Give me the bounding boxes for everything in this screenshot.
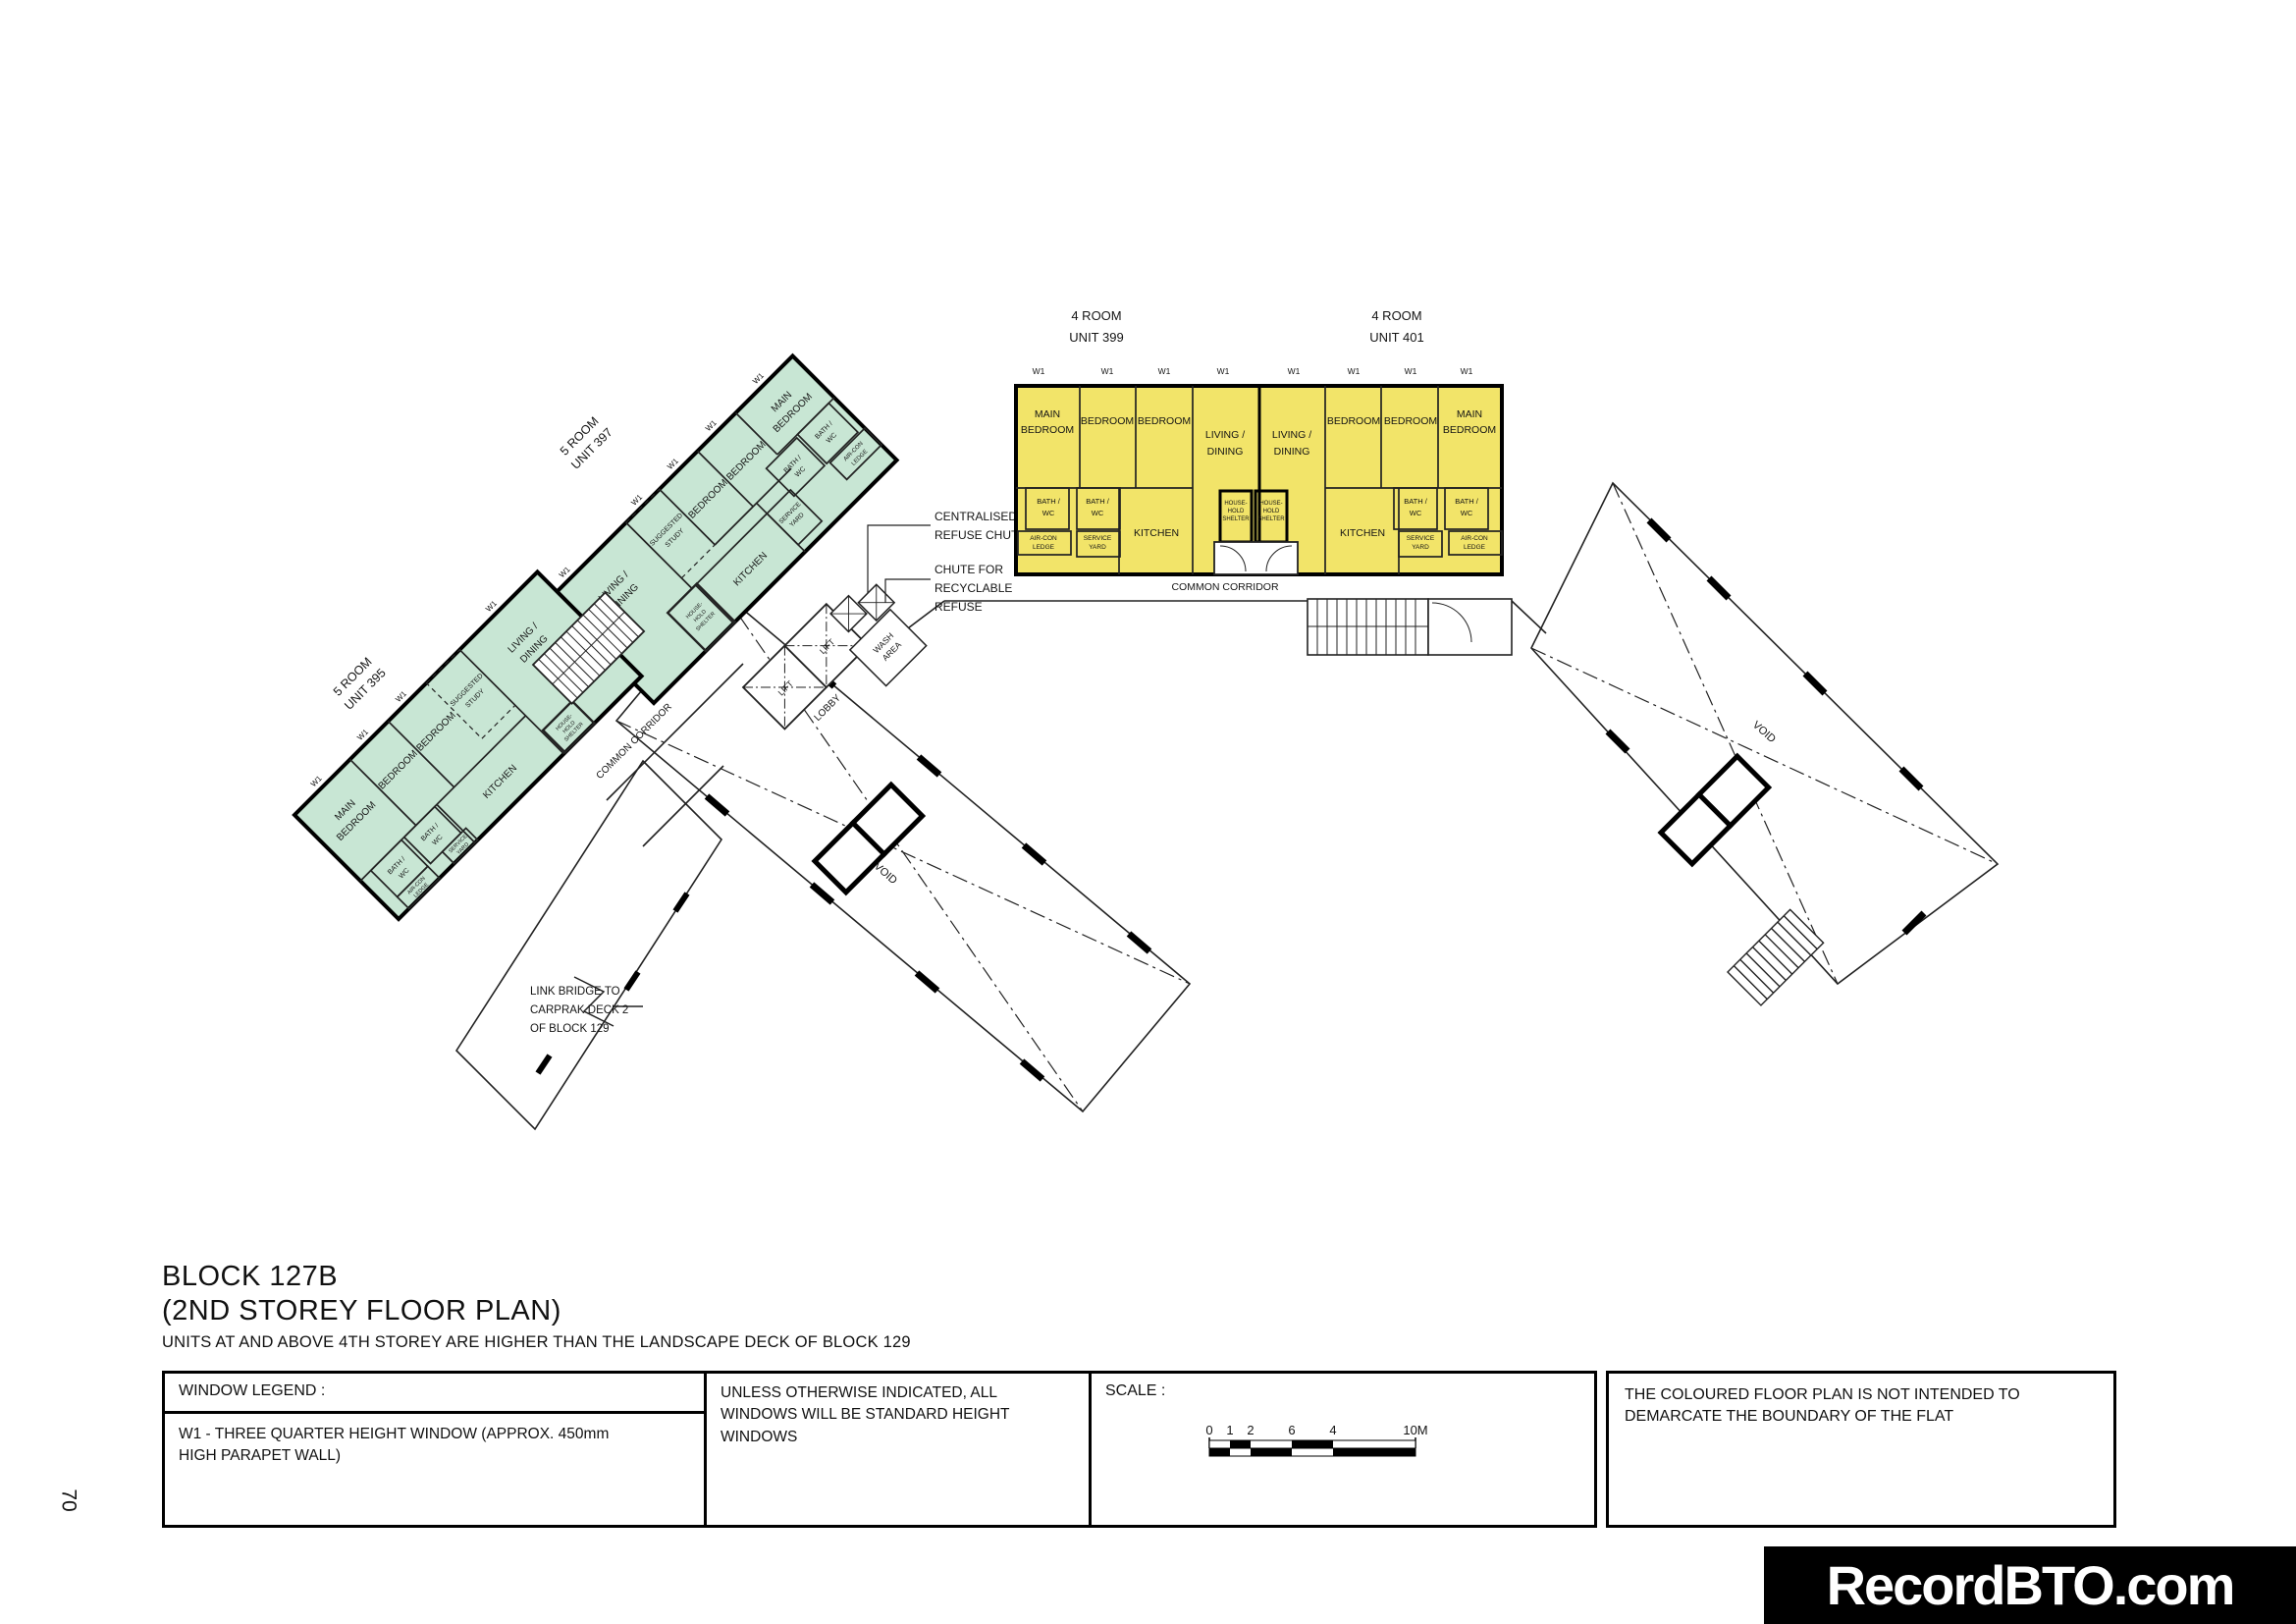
u401-service-label1: SERVICE [1407, 535, 1435, 542]
right-wing-stairs [1728, 909, 1824, 1005]
u401-bath1-label1: BATH / [1404, 497, 1428, 506]
u399-hh-label2: HOLD [1228, 509, 1245, 514]
scale-tick-1: 1 [1226, 1423, 1233, 1437]
lobby-cluster: LIFT LIFT WASH AREA [743, 569, 932, 758]
four-room-block: MAIN BEDROOM BEDROOM BEDROOM LIVING / DI… [1016, 366, 1502, 574]
scale-bar-segments [1209, 1437, 1415, 1456]
block-title: BLOCK 127B [162, 1260, 911, 1294]
void-label-center: VOID [872, 860, 899, 887]
yellow-w1-b: W1 [1101, 366, 1114, 376]
refuse-chute-line2: REFUSE CHUTE [934, 528, 1026, 542]
scale-tick-6: 4 [1329, 1423, 1336, 1437]
u399-kitchen-label: KITCHEN [1134, 527, 1179, 539]
yellow-w1-e: W1 [1288, 366, 1301, 376]
yellow-w1-f: W1 [1348, 366, 1361, 376]
common-corridor-label-horizontal: COMMON CORRIDOR [1171, 581, 1278, 593]
u401-hh-label3: SHELTER [1257, 516, 1285, 522]
windows-note-cell: UNLESS OTHERWISE INDICATED, ALL WINDOWS … [707, 1374, 1092, 1525]
void-label-right: VOID [1750, 719, 1778, 745]
scale-tick-0: 0 [1205, 1423, 1212, 1437]
u401-hh-label1: HOUSE- [1259, 501, 1282, 507]
u399-living-label2: DINING [1207, 446, 1244, 458]
u401-bath2-label1: BATH / [1455, 497, 1479, 506]
coloured-plan-disclaimer-text: THE COLOURED FLOOR PLAN IS NOT INTENDED … [1625, 1384, 2091, 1429]
title-block: BLOCK 127B (2ND STOREY FLOOR PLAN) UNITS… [162, 1260, 911, 1352]
scale-bar: 0 1 2 6 4 10M [1200, 1421, 1474, 1480]
window-legend-title: WINDOW LEGEND : [165, 1374, 704, 1414]
u401-living-label2: DINING [1274, 446, 1310, 458]
u399-hh-label1: HOUSE- [1224, 501, 1247, 507]
windows-note-text: UNLESS OTHERWISE INDICATED, ALL WINDOWS … [721, 1382, 1049, 1448]
u401-aircon-label2: LEDGE [1464, 544, 1486, 551]
u401-main-label2: BEDROOM [1443, 424, 1496, 436]
window-legend-cell: WINDOW LEGEND : W1 - THREE QUARTER HEIGH… [165, 1374, 707, 1525]
u399-bath1-label2: WC [1042, 509, 1055, 517]
u401-aircon-label1: AIR-CON [1461, 535, 1488, 542]
u399-service-label1: SERVICE [1084, 535, 1112, 542]
window-legend-w1-note: W1 - THREE QUARTER HEIGHT WINDOW (APPROX… [165, 1414, 624, 1476]
scale-tick-4: 6 [1288, 1423, 1295, 1437]
link-bridge-line3: OF BLOCK 129 [530, 1023, 610, 1035]
u399-aircon-label1: AIR-CON [1030, 535, 1057, 542]
block-stairs [1308, 599, 1512, 655]
u399-service-label2: YARD [1089, 544, 1106, 551]
u401-bath1-label2: WC [1410, 509, 1422, 517]
u401-living-label1: LIVING / [1272, 429, 1311, 441]
recyclable-line1: CHUTE FOR [934, 563, 1003, 576]
right-lift-core [1661, 756, 1769, 864]
u399-bath2-label2: WC [1092, 509, 1104, 517]
refuse-chute-line1: CENTRALISED [934, 510, 1017, 523]
u399-hh-label3: SHELTER [1222, 516, 1250, 522]
u401-kitchen-label: KITCHEN [1340, 527, 1385, 539]
u401-bedroom2-label: BEDROOM [1384, 415, 1437, 427]
page-number: 70 [57, 1489, 80, 1511]
link-bridge-line1: LINK BRIDGE TO [530, 986, 620, 998]
unit-401-title-line2: UNIT 401 [1369, 330, 1423, 345]
unit-399-title-line1: 4 ROOM [1071, 308, 1121, 323]
scale-tick-10m: 10M [1403, 1423, 1427, 1437]
yellow-w1-g: W1 [1405, 366, 1417, 376]
u399-main-label2: BEDROOM [1021, 424, 1074, 436]
recordbto-watermark: RecordBTO.com [1764, 1546, 2296, 1624]
u401-hh-label2: HOLD [1263, 509, 1280, 514]
yellow-w1-a: W1 [1033, 366, 1045, 376]
u399-aircon-label2: LEDGE [1033, 544, 1055, 551]
u401-bedroom1-label: BEDROOM [1327, 415, 1380, 427]
recyclable-line3: REFUSE [934, 600, 983, 614]
recyclable-line2: RECYCLABLE [934, 581, 1012, 595]
scale-title: SCALE : [1105, 1382, 1583, 1400]
u401-main-label1: MAIN [1457, 408, 1482, 420]
coloured-plan-disclaimer-box: THE COLOURED FLOOR PLAN IS NOT INTENDED … [1606, 1371, 2116, 1528]
u401-bath2-label2: WC [1461, 509, 1473, 517]
center-lift-core [815, 785, 923, 893]
scale-tick-2: 2 [1247, 1423, 1254, 1437]
u399-bedroom1-label: BEDROOM [1081, 415, 1134, 427]
link-bridge-annotation: LINK BRIDGE TO CARPRAK DECK 2 OF BLOCK 1… [530, 986, 628, 1035]
legend-table: WINDOW LEGEND : W1 - THREE QUARTER HEIGH… [162, 1371, 1597, 1528]
u399-bedroom2-label: BEDROOM [1138, 415, 1191, 427]
u399-living-label1: LIVING / [1205, 429, 1245, 441]
yellow-w1-d: W1 [1217, 366, 1230, 376]
storey-title: (2ND STOREY FLOOR PLAN) [162, 1294, 911, 1328]
u401-service-label2: YARD [1412, 544, 1429, 551]
scale-cell: SCALE : 0 1 2 6 4 10M [1092, 1374, 1597, 1525]
chute-annotations: CENTRALISED REFUSE CHUTE CHUTE FOR RECYC… [934, 510, 1026, 614]
floor-plan-page: VOID LINK BRIDGE TO CARPRAK DECK 2 OF BL… [0, 0, 2296, 1624]
center-void-wing [616, 593, 1190, 1111]
yellow-w1-c: W1 [1158, 366, 1171, 376]
u399-main-label1: MAIN [1035, 408, 1060, 420]
storey-note: UNITS AT AND ABOVE 4TH STOREY ARE HIGHER… [162, 1333, 911, 1352]
unit-401-title-line1: 4 ROOM [1371, 308, 1421, 323]
link-bridge-line2: CARPRAK DECK 2 [530, 1004, 628, 1016]
yellow-w1-h: W1 [1461, 366, 1473, 376]
u399-bath2-label1: BATH / [1086, 497, 1110, 506]
u399-bath1-label1: BATH / [1037, 497, 1061, 506]
center-wing-wall-accents [707, 669, 1149, 1079]
unit-399-title-line2: UNIT 399 [1069, 330, 1123, 345]
